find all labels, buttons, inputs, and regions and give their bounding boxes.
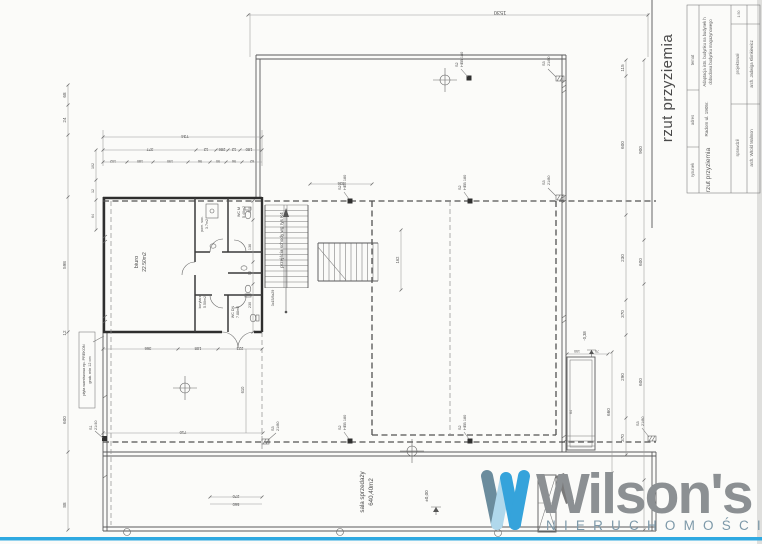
dim-label: 610 [240,386,245,394]
dim-label: 90 [216,159,220,163]
marker-code: S3 [271,426,275,431]
dim-label: 600 [638,258,643,266]
marker-code: S1 [89,425,93,430]
dim-label: 12 [91,189,95,193]
dim-label: 180 [245,147,253,152]
marker-code: S2 [338,185,342,190]
title-row-label: rysunek [690,162,695,177]
dim-label: 286 [218,147,226,152]
room-name: WC DN [231,306,235,319]
dim-label: 270 [232,494,240,499]
title-row-value: arch. Jadwiga Klimkiewicz [749,40,754,88]
marker-code: S3 [636,421,640,426]
dim-label: 600 [620,141,625,149]
floor-plan-drawing: 1530 734 377 12 286 12 180 102 180 190 9… [0,0,762,544]
dim-label: 52 [248,271,252,275]
room-area: 5.50m2 [203,296,207,308]
stairs-run-note: 3x15/8x29 [271,290,275,307]
dim-label: 102 [91,163,95,169]
dim-label: 734 [181,134,189,139]
room-area: 640,40m2 [368,478,375,506]
dim-label: 598 [62,261,67,269]
dim-label: 370 [620,434,625,442]
dim-label: 96 [232,159,236,163]
dim-label: 230 [620,254,625,262]
dim-label: 115 [620,64,625,72]
marker-spec: 21/80 [547,56,551,66]
marker-spec: 21/80 [641,416,645,426]
dim-label: 96 [198,159,202,163]
room-name: sala sprzedaży [359,470,366,512]
dim-label: 12 [231,147,236,152]
room-name: biuro [134,256,140,268]
marker-spec: 21/80 [276,421,280,431]
dim-label: 108 [194,346,202,351]
room-area: 7.88m2 [236,306,240,318]
dim-label: 62 [250,159,254,163]
dim-label: 24 [62,117,67,123]
room-area: 5.40m2 [242,206,246,218]
marker-code: S3 [542,61,546,66]
marker-spec: HEB 180 [460,52,464,67]
dim-label: 1530 [494,9,506,15]
scan-edge-shadow [757,0,762,544]
dim-label: 110 [248,207,252,213]
title-row-value: rzut przyziemia [705,148,712,193]
dim-label: 660 [606,408,611,416]
dim-label: 12 [203,147,208,152]
dim-label: 560 [232,502,240,507]
dim-label: 710 [179,430,187,435]
dim-label: 600 [638,378,643,386]
marker-code: S3 [542,180,546,185]
marker-spec: 21/40 [94,420,98,430]
title-row-value: arch. Witold Malmon [749,129,754,167]
scale-value: 1:50 [737,11,741,18]
level-marker-text: ±0,00 [424,490,429,502]
title-row-value: dobudowa budynku magazynowego [708,19,713,85]
sheet-title: rzut przyziemia [659,34,676,143]
room-name: WC M [237,207,241,217]
dim-label: 64 [569,410,573,414]
brand-name: Wilson's [536,462,752,526]
dim-label: 64 [91,214,95,218]
room-name: pom. soc. [200,216,204,232]
title-row-value: Radom ul. 1905r. [704,102,709,137]
marker-spec: HEB 180 [463,175,467,190]
dim-label: 377 [146,147,154,152]
dim-label: 223 [236,346,244,351]
marker-code: S2 [458,185,462,190]
marker-code: S2 [455,62,459,67]
dim-label: 230 [248,302,252,308]
level-marker-text: -0,38 [582,331,587,341]
marker-code: S2 [338,425,342,430]
marker-spec: HEB 180 [343,415,347,430]
title-row-label: temat [690,54,695,65]
panel-note: grub. min 12 cm [88,356,92,383]
marker-spec: 21/80 [547,175,551,185]
dim-label: 88 [62,502,67,508]
marker-code: S2 [458,425,462,430]
title-row-label: projektował [735,54,740,75]
logo-accent-bar [0,537,762,541]
marker-spec: HEB 180 [463,415,467,430]
dim-label: 190 [167,159,173,163]
dim-label: 290 [620,373,625,381]
dim-label: 68 [62,92,67,98]
title-row-value: Adaptacja istn. budynku na budynek h [702,17,707,87]
dim-label: 12 [62,330,67,336]
room-area: 22.50m2 [142,252,148,272]
dim-label: 180 [137,159,143,163]
dim-label: 600 [62,416,67,424]
dim-label: 75 [595,349,599,353]
room-name: korytarz [198,295,202,308]
title-row-label: sprawdził [735,139,740,156]
panel-note: płyta warstwowa np. PREKON [82,344,86,396]
dim-label: 136 [248,244,252,250]
brand-tagline: NIERUCHOMOŚCI [546,518,762,533]
dim-label: 366 [144,346,152,351]
dim-label: 370 [620,310,625,318]
room-area: 3.7m2 [205,219,209,229]
title-row-label: adres [690,115,695,125]
dim-label: 102 [110,159,116,163]
dim-label: 900 [638,146,643,154]
stairs-note: przejścia schody wg rys K4 [279,212,284,268]
scanned-floor-plan-sheet: 1530 734 377 12 286 12 180 102 180 190 9… [0,0,762,544]
marker-spec: HEB 180 [343,175,347,190]
dim-label: 150 [574,349,580,353]
dim-label: 162 [395,256,400,264]
